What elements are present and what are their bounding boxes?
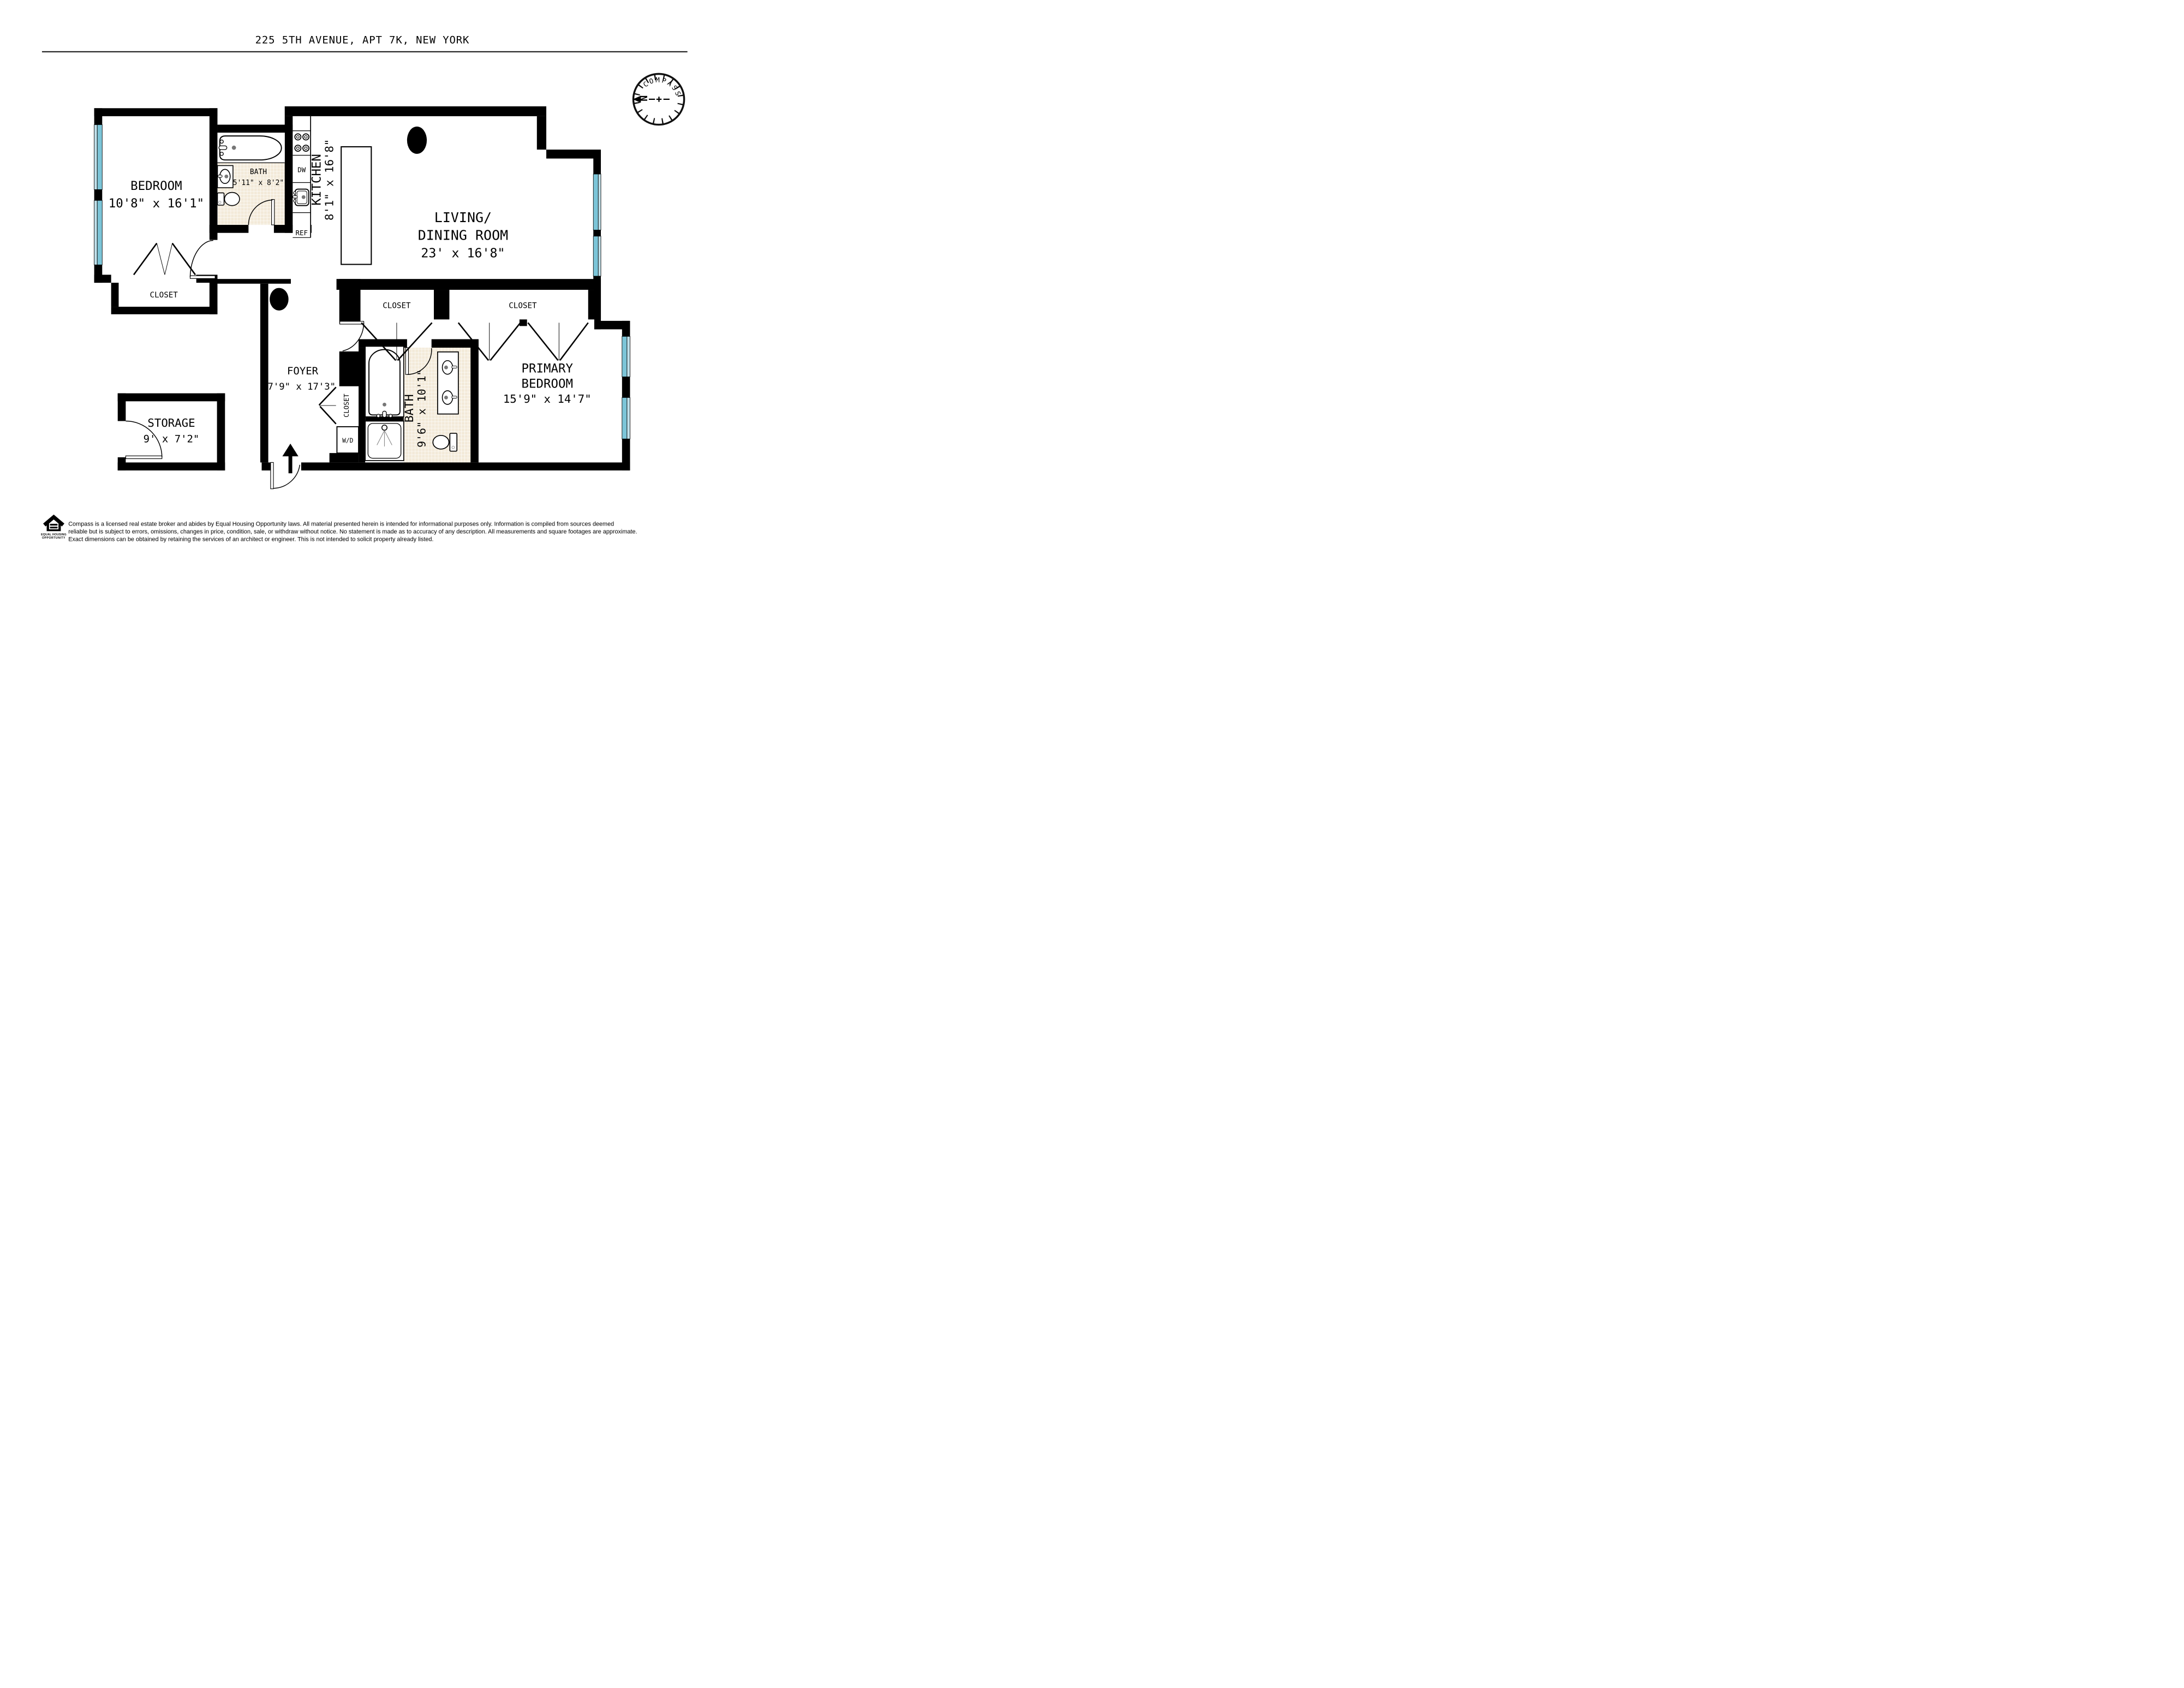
hall-closet-left-label: CLOSET: [383, 302, 411, 311]
toilet-bowl-icon: [224, 193, 240, 206]
entry-door: [271, 462, 300, 488]
compass-north-label: N: [639, 96, 650, 102]
equal-housing-logo-line1: EQUAL HOUSING: [41, 533, 67, 536]
primary-window-upper: [622, 336, 630, 377]
bedroom-closet-label: CLOSET: [150, 291, 178, 300]
page-title: 225 5TH AVENUE, APT 7K, NEW YORK: [255, 34, 470, 46]
bedroom-dims: 10'8" x 16'1": [109, 196, 204, 211]
floorplan-canvas: 225 5TH AVENUE, APT 7K, NEW YORK COMPASS…: [0, 0, 728, 563]
dishwasher-label: DW: [297, 166, 306, 174]
equal-housing-logo-line2: OPPORTUNITY: [42, 536, 65, 540]
tub-handle-icon: [220, 140, 223, 143]
kitchen-island: [341, 147, 371, 265]
washer-dryer-label: W/D: [342, 437, 353, 444]
column-foyer: [270, 288, 288, 311]
kitchen-dims: 8'1" x 16'8": [323, 139, 336, 220]
bath-1-label: BATH: [250, 168, 267, 176]
foyer-closet-label: CLOSET: [343, 393, 350, 417]
bedroom-window-upper: [94, 124, 103, 189]
sink-faucet-icon: [224, 175, 228, 178]
bedroom-label: BEDROOM: [130, 179, 182, 193]
kitchen-counter: DW REF: [293, 116, 311, 237]
foyer-closet-bifold: [319, 387, 336, 424]
bath-1-dims: 5'11" x 8'2": [233, 179, 284, 187]
bedroom-closet-bifold: [134, 243, 195, 275]
primary-window-lower: [622, 397, 630, 439]
hall-closet-right-label: CLOSET: [509, 302, 537, 311]
kitchen-label: KITCHEN: [309, 154, 324, 205]
kitchen-sink-icon: [293, 189, 308, 206]
equal-housing-logo: EQUAL HOUSING OPPORTUNITY: [41, 517, 67, 540]
toilet-bowl-icon: [433, 436, 449, 449]
living-label-line2: DINING ROOM: [418, 228, 508, 243]
primary-dims: 15'9" x 14'7": [503, 392, 592, 405]
floorplan-page: 225 5TH AVENUE, APT 7K, NEW YORK COMPASS…: [0, 0, 728, 563]
storage-label: STORAGE: [147, 416, 195, 430]
tub-spout-icon: [383, 411, 386, 417]
entry-arrow-icon: [282, 444, 298, 473]
tub-handle-icon: [377, 414, 380, 417]
primary-label-line1: PRIMARY: [522, 362, 574, 376]
tub-drain-icon: [383, 403, 386, 407]
bathtub-icon: [220, 136, 282, 160]
refrigerator-label: REF: [295, 229, 308, 237]
tub-drain-icon: [232, 146, 236, 150]
storage-dims: 9' x 7'2": [144, 433, 200, 445]
tub-handle-icon: [389, 414, 392, 417]
living-window-lower: [593, 236, 601, 276]
bath-2-label: BATH: [403, 394, 416, 422]
foyer-label: FOYER: [287, 365, 319, 377]
tub-handle-icon: [220, 152, 223, 156]
living-label-line1: LIVING/: [434, 210, 492, 225]
disclaimer-line1: Compass is a licensed real estate broker…: [68, 521, 614, 528]
disclaimer-line2: reliable but is subject to errors, omiss…: [68, 529, 637, 535]
column-living-room: [407, 127, 427, 154]
primary-label-line2: BEDROOM: [522, 377, 573, 391]
bedroom-window-lower: [94, 200, 103, 265]
living-dims: 23' x 16'8": [421, 246, 505, 261]
bath-2-dims: 9'6" x 10'1": [415, 369, 428, 448]
tub-spout-icon: [219, 146, 227, 150]
compass-rose: COMPASS N: [633, 73, 685, 125]
living-window-upper: [593, 174, 601, 230]
disclaimer-line3: Exact dimensions can be obtained by reta…: [68, 536, 433, 542]
foyer-dims: 7'9" x 17'3": [268, 381, 336, 392]
showerhead-icon: [382, 425, 387, 430]
